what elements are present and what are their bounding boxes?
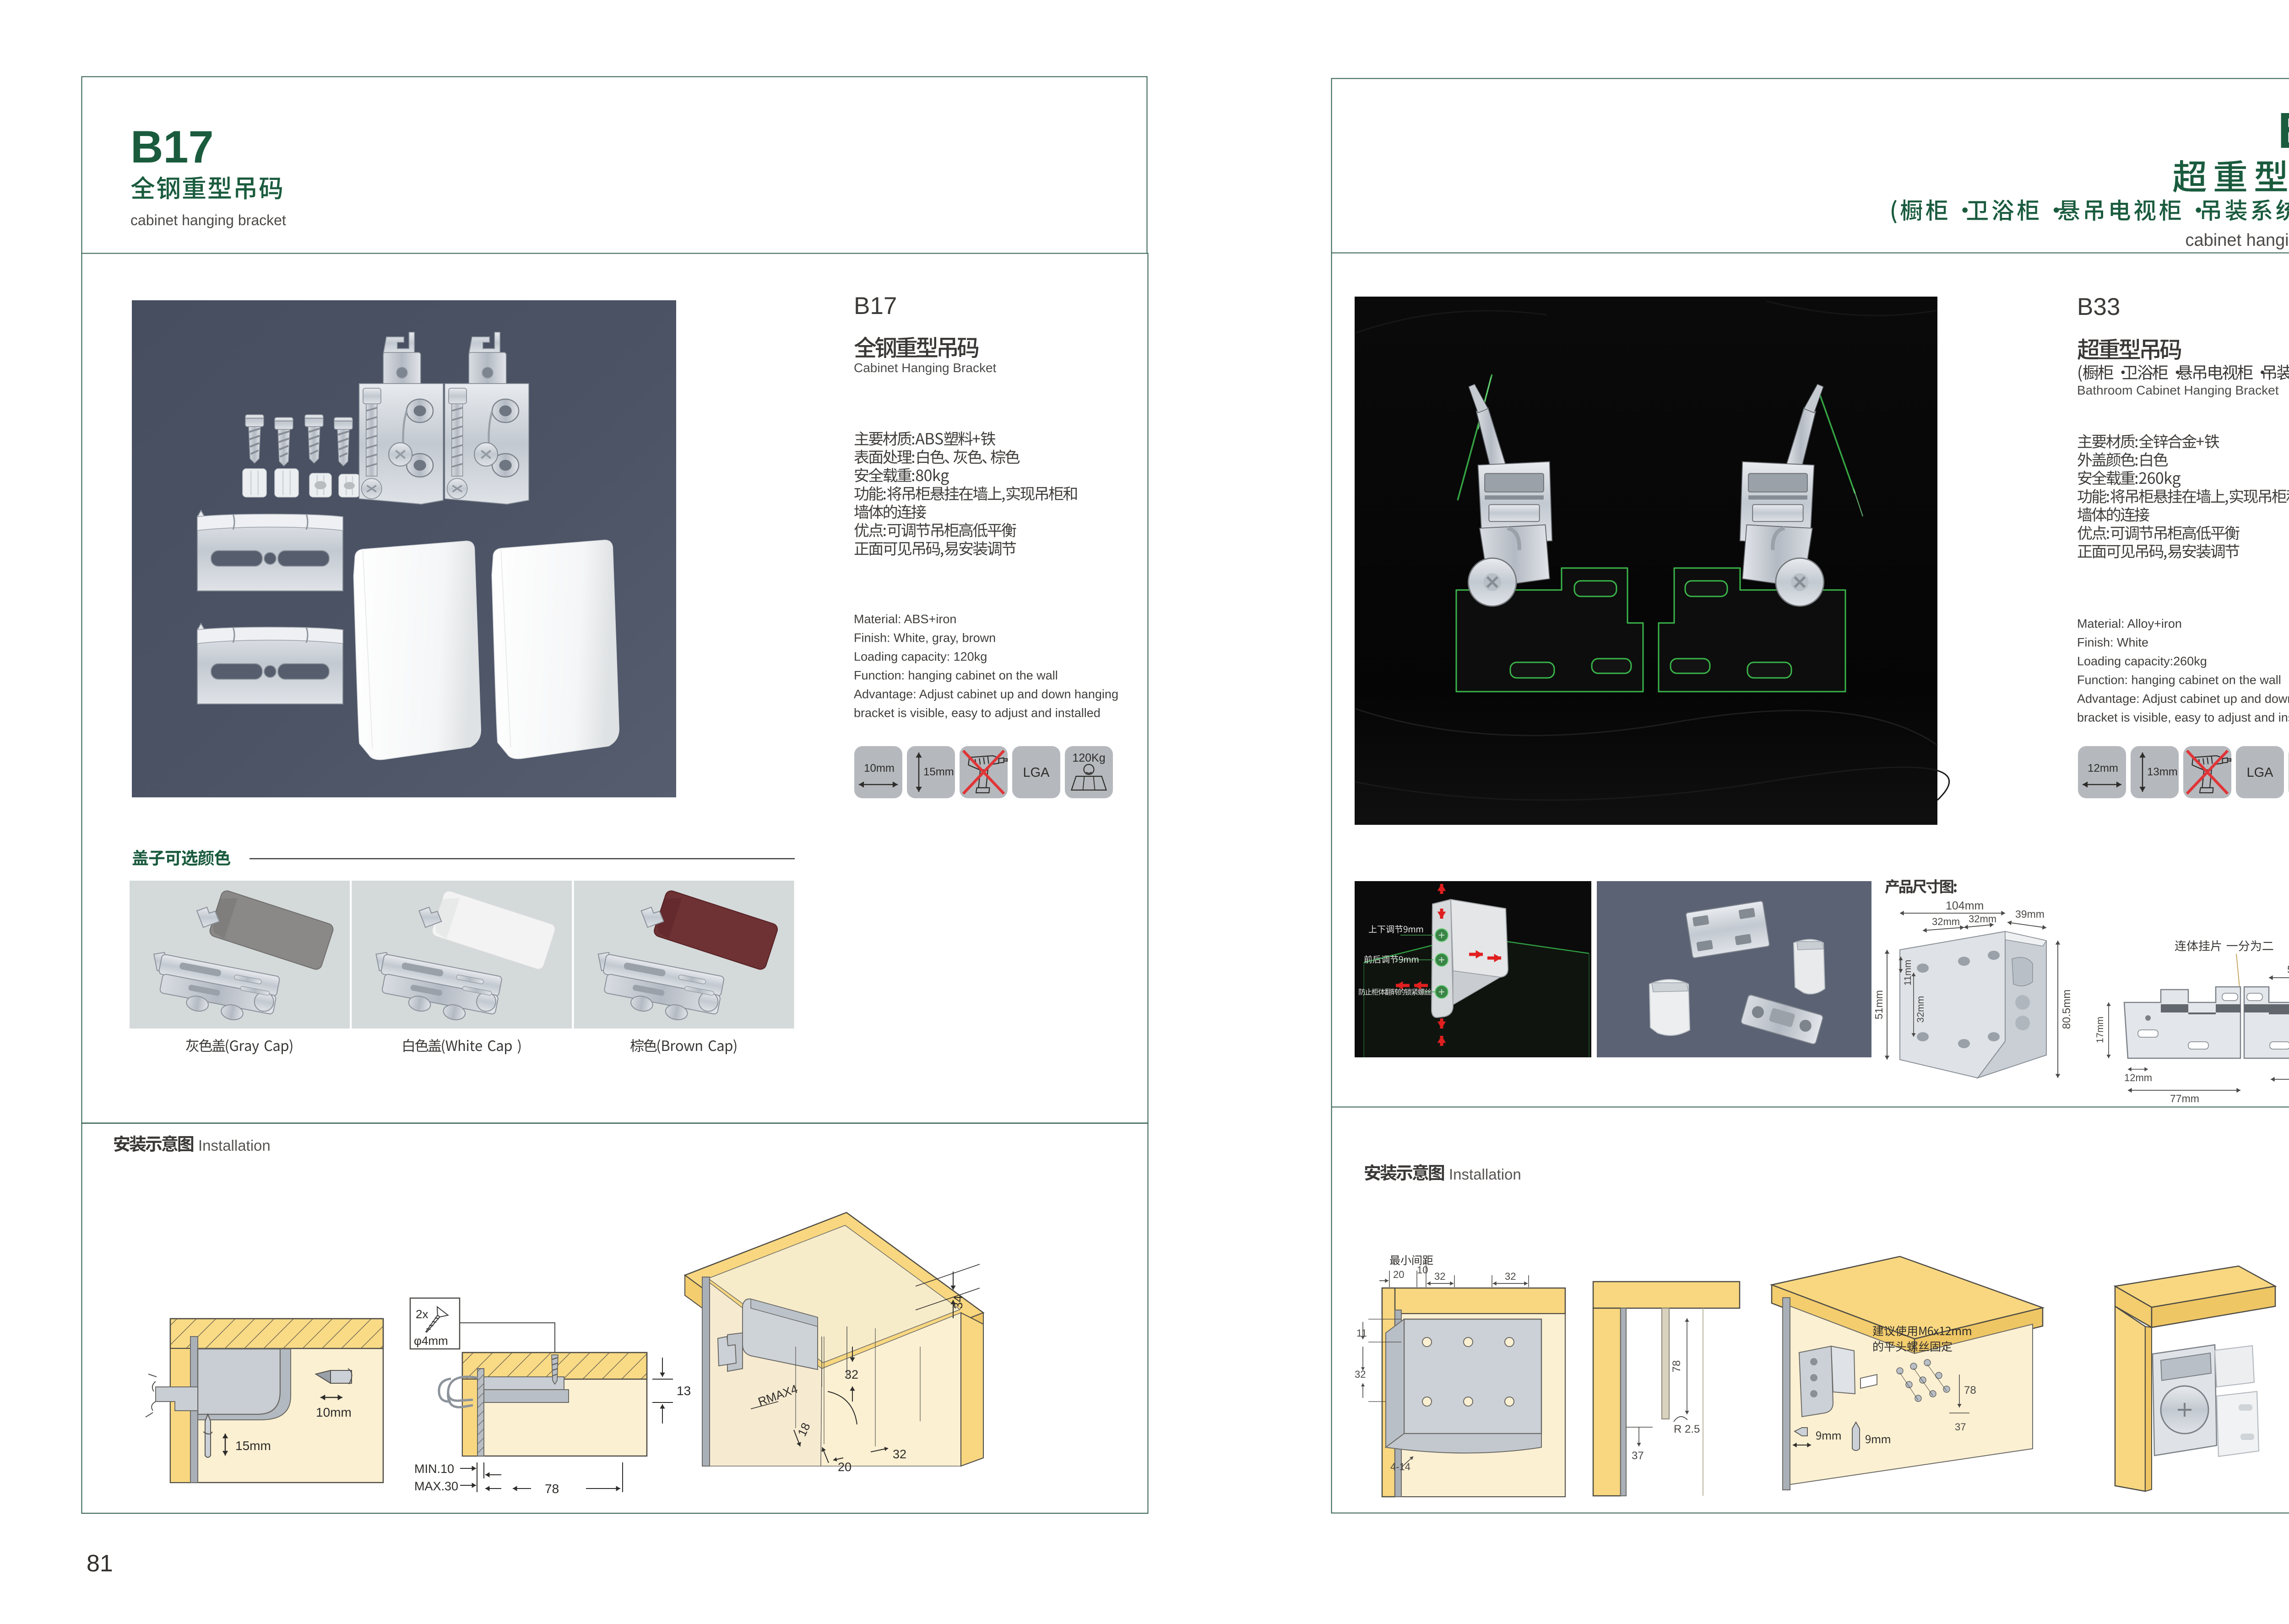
svg-text:10mm: 10mm <box>864 762 895 774</box>
svg-text:32: 32 <box>1355 1369 1366 1380</box>
svg-text:Loading capacity:260kg: Loading capacity:260kg <box>2077 655 2207 668</box>
svg-text:Function: hanging cabinet on t: Function: hanging cabinet on the wall <box>2077 673 2281 687</box>
svg-text:B33: B33 <box>2077 293 2120 320</box>
svg-text:2x: 2x <box>416 1307 428 1321</box>
svg-text:17mm: 17mm <box>2095 1017 2105 1043</box>
svg-text:32mm: 32mm <box>1915 996 1926 1023</box>
svg-text:77mm: 77mm <box>2170 1093 2199 1104</box>
svg-text:81: 81 <box>87 1550 113 1577</box>
svg-text:cabinet hanging bracket: cabinet hanging bracket <box>130 212 286 228</box>
svg-text:Function: hanging cabinet on t: Function: hanging cabinet on the wall <box>854 669 1058 682</box>
svg-text:Advantage: Adjust cabinet up a: Advantage: Adjust cabinet up and down ha… <box>854 687 1118 701</box>
svg-text:32mm: 32mm <box>1969 913 1996 925</box>
svg-text:bracket is visible, easy to ad: bracket is visible, easy to adjust and i… <box>854 706 1101 720</box>
svg-text:13mm: 13mm <box>2147 766 2178 778</box>
svg-text:B17: B17 <box>130 121 214 172</box>
svg-text:20: 20 <box>1393 1269 1404 1280</box>
svg-text:37: 37 <box>1632 1450 1644 1462</box>
svg-text:104mm: 104mm <box>1946 899 1984 912</box>
svg-text:15mm: 15mm <box>923 766 954 778</box>
svg-text:MAX.30: MAX.30 <box>414 1479 458 1493</box>
svg-text:32: 32 <box>1434 1271 1445 1282</box>
svg-text:37: 37 <box>1955 1421 1966 1433</box>
svg-text:φ4mm: φ4mm <box>414 1334 448 1348</box>
svg-text:Installation: Installation <box>1449 1166 1521 1183</box>
svg-text:32: 32 <box>845 1368 858 1381</box>
svg-text:11mm: 11mm <box>1903 960 1913 986</box>
svg-text:55mm: 55mm <box>2287 964 2289 975</box>
svg-text:R 2.5: R 2.5 <box>1674 1423 1700 1435</box>
svg-text:80.5mm: 80.5mm <box>2061 990 2073 1029</box>
svg-text:10: 10 <box>1417 1264 1428 1276</box>
svg-text:15mm: 15mm <box>235 1439 271 1453</box>
svg-text:20: 20 <box>838 1460 852 1474</box>
svg-text:78: 78 <box>1671 1360 1683 1373</box>
svg-text:Installation: Installation <box>198 1137 271 1154</box>
svg-text:13: 13 <box>677 1384 691 1398</box>
svg-text:Finish: White: Finish: White <box>2077 636 2148 650</box>
svg-text:B17: B17 <box>854 292 897 319</box>
svg-text:LGA: LGA <box>1023 765 1050 780</box>
svg-text:12mm: 12mm <box>2088 762 2118 774</box>
svg-text:120Kg: 120Kg <box>1072 752 1105 764</box>
svg-text:Material: ABS+iron: Material: ABS+iron <box>854 612 956 626</box>
svg-text:78: 78 <box>1964 1384 1976 1397</box>
svg-text:51mm: 51mm <box>1873 990 1885 1019</box>
svg-text:Bathroom Cabinet Hanging Brack: Bathroom Cabinet Hanging Bracket <box>2077 383 2279 397</box>
svg-text:4-14: 4-14 <box>1390 1461 1410 1472</box>
svg-text:Finish: White, gray, brown: Finish: White, gray, brown <box>854 631 996 645</box>
svg-text:32: 32 <box>893 1447 906 1461</box>
svg-text:34: 34 <box>951 1295 965 1309</box>
svg-text:12mm: 12mm <box>2124 1072 2152 1083</box>
svg-text:10mm: 10mm <box>316 1405 352 1419</box>
svg-text:bracket is visible, easy to ad: bracket is visible, easy to adjust and i… <box>2077 711 2289 725</box>
svg-text:Advantage: Adjust cabinet up a: Advantage: Adjust cabinet up and down ha… <box>2077 692 2289 706</box>
svg-text:32mm: 32mm <box>1932 916 1960 927</box>
svg-text:Cabinet Hanging Bracket: Cabinet Hanging Bracket <box>854 361 997 375</box>
svg-text:Material: Alloy+iron: Material: Alloy+iron <box>2077 617 2182 631</box>
svg-text:78: 78 <box>545 1482 559 1496</box>
svg-text:LGA: LGA <box>2246 765 2273 780</box>
svg-text:B33: B33 <box>2278 103 2289 159</box>
svg-text:Loading capacity: 120kg: Loading capacity: 120kg <box>854 650 987 664</box>
svg-text:MIN.10: MIN.10 <box>414 1462 454 1476</box>
svg-text:39mm: 39mm <box>2015 908 2045 920</box>
svg-text:cabinet hanging bracket: cabinet hanging bracket <box>2185 231 2289 250</box>
svg-text:32: 32 <box>1505 1271 1516 1282</box>
